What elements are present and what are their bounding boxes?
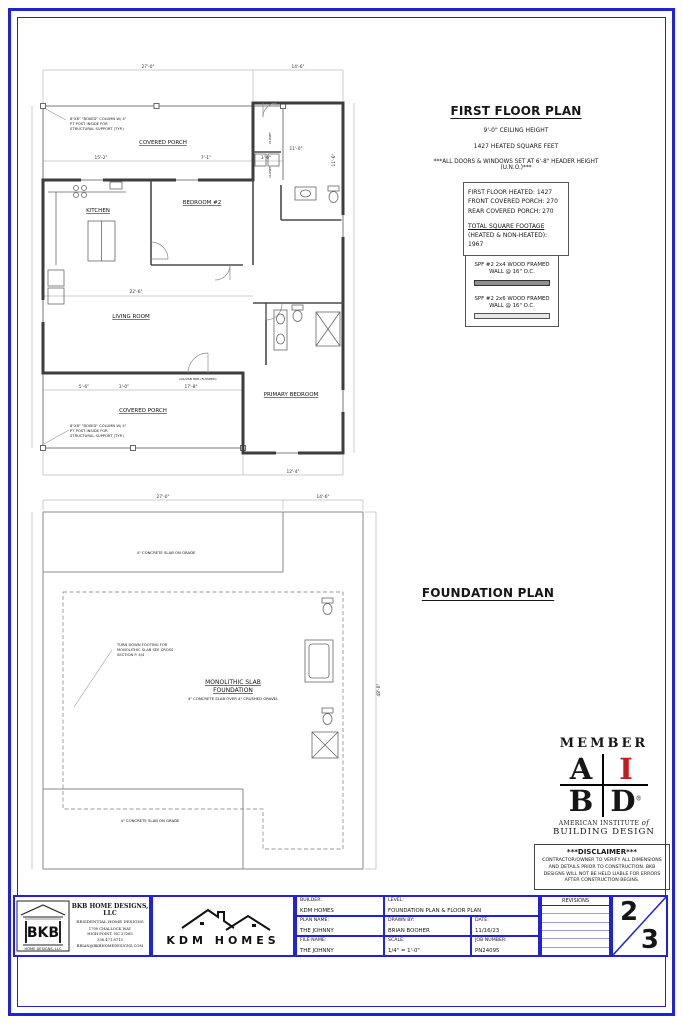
- drawn-by-cell: DRAWN BY: BRIAN BOOHER: [385, 917, 472, 935]
- boxed-column-note-front: 8"X8" "BOXED" COLUMN W/ 4" PT POST INSID…: [70, 117, 132, 131]
- aibd-letter-i: I: [604, 754, 648, 786]
- bath-fixtures: [255, 154, 340, 350]
- date-value: 11/16/23: [475, 928, 535, 934]
- porch-outlines: [43, 106, 283, 448]
- sink-icon: [277, 314, 285, 324]
- door-arc: [151, 242, 168, 259]
- disclaimer-title: ***DISCLAIMER***: [538, 848, 666, 856]
- square-footage-box: FIRST FLOOR HEATED: 1427 FRONT COVERED P…: [463, 182, 569, 256]
- wall-legend-2x6-label: SPF #2 2x6 WOOD FRAMED WALL @ 16" O.C.: [471, 296, 553, 311]
- title-block-fields: BUILDER: KDM HOMES LEVEL: FOUNDATION PLA…: [295, 895, 540, 957]
- dim-primary-width: 12'-4": [287, 469, 300, 475]
- room-label-covered-porch-rear: COVERED PORCH: [119, 408, 167, 414]
- plan-name-cell: PLAN NAME: THE JOHNNY: [297, 917, 385, 935]
- aibd-letter-a: A: [560, 754, 604, 786]
- level-cell: LEVEL: FOUNDATION PLAN & FLOOR PLAN: [385, 897, 538, 915]
- kdm-homes-logo-box: KDM HOMES: [151, 895, 295, 957]
- room-label-living-room: LIVING ROOM: [112, 314, 150, 320]
- kitchen-fixtures: [48, 182, 126, 304]
- slab-title-line1: MONOLITHIC SLAB: [205, 679, 261, 686]
- dim-bed-depth: 11'-6": [331, 154, 337, 167]
- sink-icon: [277, 334, 285, 344]
- kdm-homes-wordmark: KDM HOMES: [166, 934, 279, 947]
- toilet-tank-icon: [322, 708, 333, 713]
- foundation-plan-title: FOUNDATION PLAN: [400, 586, 576, 600]
- date-label: DATE:: [475, 918, 535, 923]
- toilet-icon: [329, 192, 338, 203]
- aibd-line2: BUILDING DESIGN: [540, 827, 668, 837]
- toilet-icon: [293, 311, 302, 322]
- file-name-label: FILE NAME:: [300, 938, 380, 943]
- aibd-logo: A I B D®: [560, 754, 648, 817]
- sqft-rear-porch: REAR COVERED PORCH: 270: [468, 207, 564, 216]
- bkb-company-name: BKB HOME DESIGNS, LLC: [71, 903, 149, 917]
- bkb-tagline: RESIDENTIAL HOME DESIGNS: [71, 919, 149, 924]
- job-number-label: JOB NUMBER:: [475, 938, 535, 943]
- dim-wing-width: 14'-6": [292, 64, 305, 70]
- dim-overall-width: 27'-0": [142, 64, 155, 70]
- drawn-by-value: BRIAN BOOHER: [388, 928, 467, 934]
- job-number-value: PN24095: [475, 948, 535, 954]
- closet-label: CLOSET: [268, 132, 272, 144]
- dim-foundation-depth: 48'-0": [376, 684, 382, 697]
- foundation-plan-drawing: 27'-0" 14'-6" 48'-0" MONOLITHIC SLAB: [26, 492, 386, 884]
- dim-rear-c: 17'-8": [185, 384, 198, 390]
- dim-foundation-width: 27'-0": [157, 494, 170, 500]
- door-arc: [263, 103, 277, 117]
- exterior-walls: [43, 103, 343, 453]
- interior-walls: [151, 152, 343, 365]
- room-label-bedroom-2: BEDROOM #2: [183, 200, 222, 206]
- note-leaders: [74, 650, 112, 707]
- aibd-member-badge: MEMBER A I B D® AMERICAN INSTITUTE of BU…: [540, 736, 668, 837]
- level-value: FOUNDATION PLAN & FLOOR PLAN: [388, 908, 535, 914]
- door-arc: [188, 353, 208, 373]
- revision-line: [542, 931, 609, 939]
- aibd-letter-b: B: [560, 786, 604, 816]
- cabinet-icon: [48, 270, 64, 286]
- slab-subtitle: 4" CONCRETE SLAB OVER 4" CRUSHED GRAVEL: [188, 696, 279, 701]
- wall-legend-box: SPF #2 2x4 WOOD FRAMED WALL @ 16" O.C. S…: [465, 255, 559, 327]
- porch-columns: [41, 104, 286, 451]
- revisions-box: REVISIONS: [540, 895, 611, 957]
- aibd-letter-d: D®: [604, 786, 648, 816]
- vanity-icon: [295, 187, 316, 200]
- title-block-row-3: FILE NAME: THE JOHNNY SCALE: 1/4" = 1'-0…: [297, 937, 538, 955]
- drawn-by-label: DRAWN BY:: [388, 918, 467, 923]
- title-block-row-1: BUILDER: KDM HOMES LEVEL: FOUNDATION PLA…: [297, 897, 538, 917]
- level-label: LEVEL:: [388, 898, 535, 903]
- ceiling-height-note: 9'-0" CEILING HEIGHT: [418, 127, 614, 134]
- kitchen-sink-icon: [110, 182, 122, 189]
- wall-2x6-sample: [474, 313, 550, 319]
- bkb-logo-subtext: HOME DESIGNS, LLC: [25, 947, 62, 951]
- dimension-labels: 27'-0" 14'-6" 48'-0": [157, 494, 382, 696]
- revision-line: [542, 939, 609, 947]
- aibd-letter-d-glyph: D: [610, 784, 635, 818]
- dim-porch-b: 7'-1": [201, 155, 211, 161]
- disclaimer-box: ***DISCLAIMER*** CONTRACTOR/OWNER TO VER…: [534, 844, 670, 890]
- bkb-logo-box: BKB HOME DESIGNS, LLC BKB HOME DESIGNS, …: [13, 895, 151, 957]
- revision-line: [542, 948, 609, 955]
- revision-line: [542, 906, 609, 914]
- builder-value: KDM HOMES: [300, 908, 380, 914]
- stove-burner-icon: [82, 193, 87, 198]
- footing-dashed-outline: [63, 592, 343, 849]
- sqft-total-label: TOTAL SQUARE FOOTAGE: [468, 222, 564, 231]
- room-label-covered-porch-front: COVERED PORCH: [139, 140, 187, 146]
- door-arc: [215, 265, 230, 280]
- flush-header-note: LVL/OSB HDR (FLUSHED): [179, 377, 216, 381]
- bkb-email: BRIAN@BKBHOMEDESIGNS.COM: [71, 944, 149, 950]
- job-number-cell: JOB NUMBER: PN24095: [472, 937, 538, 955]
- file-name-cell: FILE NAME: THE JOHNNY: [297, 937, 385, 955]
- dim-living-width: 22'-6": [130, 289, 143, 295]
- first-floor-plan-title: FIRST FLOOR PLAN: [418, 104, 614, 118]
- plan-name-label: PLAN NAME:: [300, 918, 380, 923]
- toilet-icon: [323, 604, 332, 615]
- toilet-tank-icon: [328, 186, 339, 191]
- registered-mark: ®: [636, 796, 642, 803]
- sheet-number-box: 2 3: [611, 895, 668, 957]
- dimension-lines: [32, 500, 376, 869]
- plumbing-fixtures: [305, 598, 338, 758]
- boxed-column-note-rear: 8"X8" "BOXED" COLUMN W/ 4" PT POST INSID…: [70, 424, 132, 438]
- builder-label: BUILDER:: [300, 898, 380, 903]
- dim-bed-width: 11'-0": [290, 146, 303, 152]
- sqft-heated: FIRST FLOOR HEATED: 1427: [468, 188, 564, 197]
- member-label: MEMBER: [540, 736, 668, 751]
- foundation-labels: MONOLITHIC SLAB FOUNDATION 4" CONCRETE S…: [121, 550, 280, 823]
- plan-name-value: THE JOHNNY: [300, 928, 380, 934]
- dim-porch-a: 15'-2": [95, 155, 108, 161]
- closet-label: CLOSET: [268, 166, 272, 178]
- heated-sqft-note: 1427 HEATED SQUARE FEET: [418, 143, 614, 150]
- first-floor-plan-heading: FIRST FLOOR PLAN 9'-0" CEILING HEIGHT 14…: [418, 104, 614, 256]
- toilet-icon: [323, 714, 332, 725]
- bkb-logo-text: BKB: [27, 925, 59, 941]
- revisions-label: REVISIONS: [542, 897, 609, 906]
- blueprint-sheet: 27'-0" 14'-6" 15'-2" 7'-1" 3'-6" 22'-6" …: [0, 0, 683, 1024]
- aibd-of: of: [642, 819, 650, 827]
- bkb-pediment-logo: BKB HOME DESIGNS, LLC: [15, 899, 71, 953]
- builder-cell: BUILDER: KDM HOMES: [297, 897, 385, 915]
- date-cell: DATE: 11/16/23: [472, 917, 538, 935]
- header-height-note: ***ALL DOORS & WINDOWS SET AT 6'-8" HEAD…: [418, 159, 614, 171]
- stove-burner-icon: [74, 193, 79, 198]
- title-block-row-2: PLAN NAME: THE JOHNNY DRAWN BY: BRIAN BO…: [297, 917, 538, 937]
- slab-outline: [43, 512, 363, 869]
- stove-burner-icon: [74, 186, 79, 191]
- kdm-homes-logo: KDM HOMES: [160, 902, 286, 950]
- disclaimer-body: CONTRACTOR/OWNER TO VERIFY ALL DIMENSION…: [538, 858, 666, 885]
- sqft-total-value: (HEATED & NON-HEATED): 1967: [468, 231, 564, 250]
- wall-2x4-sample: [474, 280, 550, 286]
- revision-line: [542, 914, 609, 922]
- tub-basin-icon: [309, 644, 329, 678]
- turndown-footing-note: TURN DOWN FOOTING FOR MONOLITHIC SLAB SE…: [117, 643, 177, 657]
- sheet-number-current: 2: [620, 899, 638, 925]
- room-label-kitchen: KITCHEN: [86, 208, 110, 214]
- slab-title-line2: FOUNDATION: [213, 687, 253, 694]
- scale-label: SCALE:: [388, 938, 467, 943]
- scale-cell: SCALE: 1/4" = 1'-0": [385, 937, 472, 955]
- scale-value: 1/4" = 1'-0": [388, 948, 467, 954]
- room-label-primary-bedroom: PRIMARY BEDROOM: [264, 392, 319, 398]
- dim-foundation-wing: 14'-6": [317, 494, 330, 500]
- sqft-front-porch: FRONT COVERED PORCH: 270: [468, 197, 564, 206]
- toilet-tank-icon: [322, 598, 333, 603]
- sheet-number-total: 3: [641, 927, 659, 953]
- wall-legend-2x4-label: SPF #2 2x4 WOOD FRAMED WALL @ 16" O.C.: [471, 262, 553, 277]
- bkb-company-info: BKB HOME DESIGNS, LLC RESIDENTIAL HOME D…: [71, 903, 149, 949]
- toilet-tank-icon: [292, 305, 303, 310]
- file-name-value: THE JOHNNY: [300, 948, 380, 954]
- dim-rear-b: 3'-0": [119, 384, 129, 390]
- stove-burner-icon: [82, 186, 87, 191]
- sink-icon: [301, 190, 311, 197]
- slab-on-grade-rear: 4" CONCRETE SLAB ON GRADE: [121, 818, 180, 823]
- slab-on-grade-front: 4" CONCRETE SLAB ON GRADE: [137, 550, 196, 555]
- aibd-line1-text: AMERICAN INSTITUTE: [559, 820, 640, 827]
- revision-line: [542, 923, 609, 931]
- aibd-line1: AMERICAN INSTITUTE of: [540, 819, 668, 827]
- dim-rear-a: 5'-6": [79, 384, 89, 390]
